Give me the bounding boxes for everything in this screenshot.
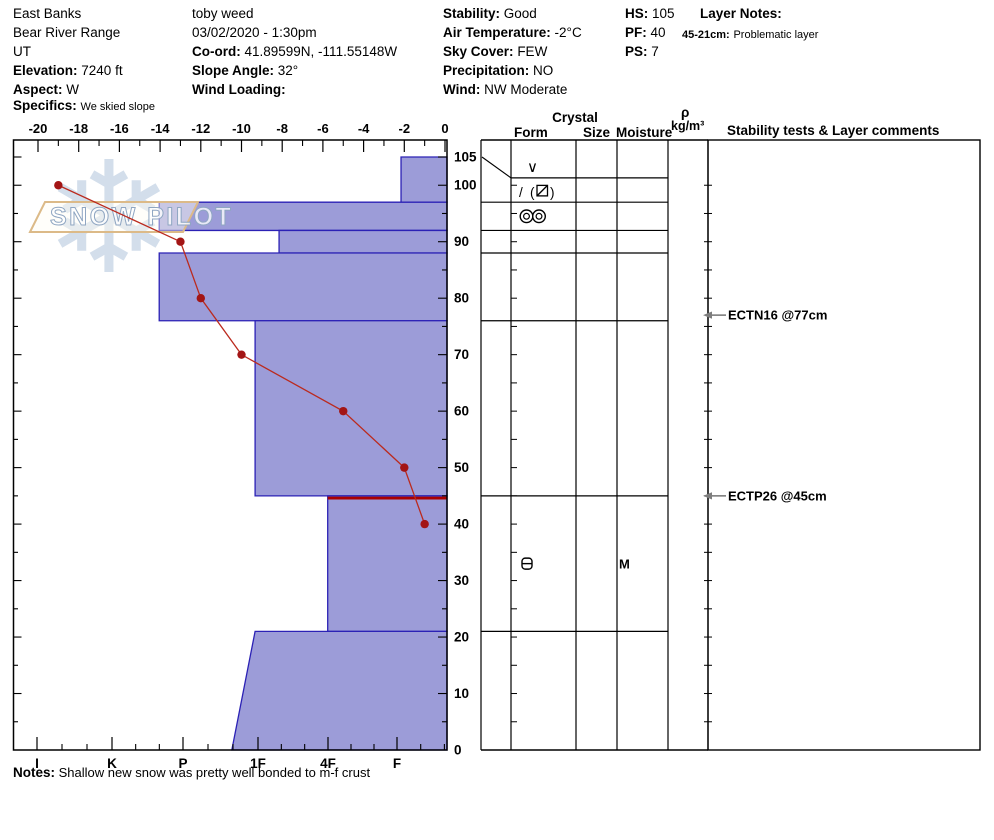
decomposing-fragments-symbol: / [519,185,523,200]
temperature-point [339,407,347,415]
snow-layer-bar [328,496,447,632]
stability-test-annotations: ECTN16 @77cmECTP26 @45cm [703,308,827,504]
temperature-point [54,181,62,189]
depth-tick-label: 105 [454,150,477,165]
moisture-value: M [619,557,630,572]
depth-tick-label: 50 [454,460,469,475]
paren-open: ( [530,185,535,200]
snow-layer-bars [159,157,447,750]
snow-layer-bar [159,253,447,321]
temp-tick-label: -6 [317,121,329,136]
temp-tick-label: -16 [110,121,129,136]
snow-layer-bar [232,631,447,750]
paren-close: ) [550,185,555,200]
pit-notes: Notes: Shallow new snow was pretty well … [13,765,370,780]
depth-tick-label: 60 [454,404,469,419]
layer-info-table [481,140,980,750]
snow-layer-bar [255,321,447,496]
ect-result-label: ECTP26 @45cm [728,488,827,503]
temp-tick-label: -20 [29,121,48,136]
surface-hoar-symbol: ∨ [527,159,538,176]
temperature-point [176,238,184,246]
depth-tick-label: 80 [454,291,469,306]
temp-tick-label: -12 [191,121,210,136]
temp-tick-label: -8 [276,121,288,136]
temp-tick-label: -18 [69,121,88,136]
comments-box [708,140,980,750]
depth-tick-label: 70 [454,347,469,362]
watermark-text: SNOW PILOT [50,203,233,231]
depth-tick-label: 90 [454,234,469,249]
temperature-point [400,463,408,471]
depth-tick-label: 40 [454,517,469,532]
depth-tick-label: 100 [454,178,477,193]
facet-square-diagonal [537,185,548,196]
temperature-point [197,294,205,302]
melt-form-symbol [533,210,546,223]
temp-tick-label: -10 [232,121,251,136]
ect-result-label: ECTN16 @77cm [728,308,827,323]
temperature-point [237,350,245,358]
hardness-tick-label: F [393,756,401,771]
depth-tick-label: 20 [454,630,469,645]
snow-layer-bar [401,157,447,202]
depth-tick-label: 0 [454,743,462,758]
snow-profile-chart: ❄SNOW PILOT-20-18-16-14-12-10-8-6-4-20IK… [0,0,994,840]
snow-layer-bar [279,230,447,253]
crystal-form-symbols: ∨/()M [519,159,630,571]
surface-connector-diagonal [482,157,511,178]
depth-tick-label: 10 [454,686,469,701]
temp-tick-label: 0 [441,121,448,136]
snowpilot-profile-page: East Banks Bear River Range UT Elevation… [0,0,994,840]
melt-form-symbol [520,210,533,223]
depth-tick-label: 30 [454,573,469,588]
temperature-point [420,520,428,528]
temp-tick-label: -4 [358,121,370,136]
temp-tick-label: -14 [151,121,171,136]
temp-tick-label: -2 [399,121,411,136]
